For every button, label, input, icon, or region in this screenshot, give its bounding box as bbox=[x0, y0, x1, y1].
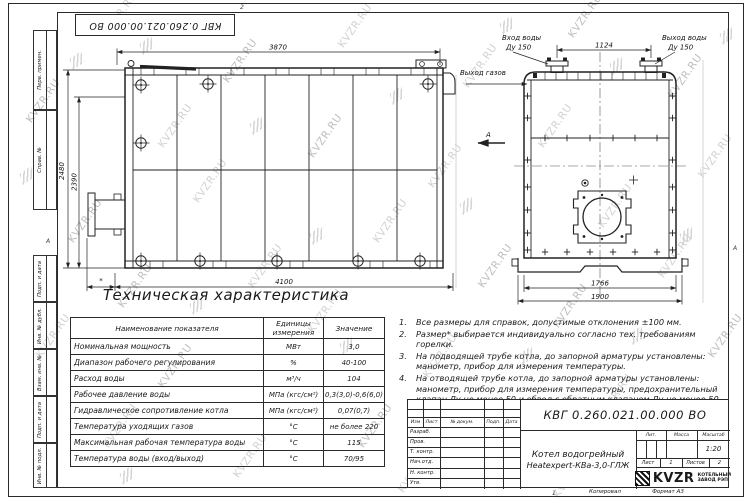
side-bottom-bolt-ticks bbox=[150, 261, 430, 268]
spec-header-cell: Значение bbox=[324, 318, 385, 339]
frame-margin-divider bbox=[46, 350, 47, 395]
spec-name-cell: Диапазон рабочего регулирования bbox=[71, 355, 264, 371]
spec-value-cell: 3,0 bbox=[324, 339, 385, 355]
company-name: КОТЕЛЬНЫЙ ЗАВОД РЭП bbox=[697, 473, 731, 484]
frame-margin-divider bbox=[46, 397, 47, 442]
spec-row: Рабочее давление водыМПа (кгс/см²)0,3(3,… bbox=[71, 387, 385, 403]
title-block-doc-number: КВГ 0.260.021.00.000 ВО bbox=[520, 400, 730, 430]
spec-units-cell: МПа (кгс/см²) bbox=[264, 387, 324, 403]
spec-units-cell: °С bbox=[264, 435, 324, 451]
spec-row: Номинальная мощностьМВт3,0 bbox=[71, 339, 385, 355]
spec-name-cell: Температура воды (вход/выход) bbox=[71, 451, 264, 467]
spec-units-cell: °С bbox=[264, 419, 324, 435]
outlet-flange bbox=[640, 58, 662, 73]
spec-units-cell: °С bbox=[264, 451, 324, 467]
inlet-label-1: Вход воды bbox=[502, 34, 542, 42]
gas-outlet-flange bbox=[416, 60, 455, 94]
title-block-row-label: Нач.отд. bbox=[410, 459, 433, 465]
spec-header-cell: Единицы измерения bbox=[264, 318, 324, 339]
drawing-sheet: { "watermark": "KVZR.RU", "doc_number": … bbox=[0, 0, 750, 500]
note-number: 1. bbox=[399, 317, 416, 328]
top-stamp-number: КВГ 0.260.021.00.000 ВО bbox=[89, 20, 221, 31]
title-block-line bbox=[408, 447, 520, 448]
spec-name-cell: Гидравлическое сопротивление котла bbox=[71, 403, 264, 419]
frame-margin-label: Справ. № bbox=[37, 147, 43, 173]
side-pipe bbox=[88, 193, 125, 236]
title-block-row-label: Н. контр. bbox=[410, 470, 435, 476]
spec-units-cell: МПа (кгс/см²) bbox=[264, 403, 324, 419]
note-text: На подводящей трубе котла, до запорной а… bbox=[416, 351, 731, 372]
spec-name-cell: Расход воды bbox=[71, 371, 264, 387]
zone-mark-right: А bbox=[733, 245, 737, 252]
zone-mark-top: 2 bbox=[240, 4, 244, 11]
product-name: Котел водогрейный Heatexpert-КВа-3,0-ГЛЖ bbox=[520, 430, 636, 489]
spec-name-cell: Температура уходящих газов bbox=[71, 419, 264, 435]
company-name-line2: ЗАВОД РЭП bbox=[697, 478, 728, 483]
note-item: 2.Размер* выбирается индивидуально согла… bbox=[399, 329, 731, 350]
tb-col-list: Лист bbox=[423, 417, 440, 427]
frame-margin-label: Подп. и дата bbox=[37, 260, 43, 296]
spec-row: Гидравлическое сопротивление котлаМПа (к… bbox=[71, 403, 385, 419]
note-item: 1.Все размеры для справок, допустимые от… bbox=[399, 317, 731, 328]
product-name-line2: Heatexpert-КВа-3,0-ГЛЖ bbox=[527, 460, 630, 470]
side-view: 3870 2480 2390 4100 * Выход газов А bbox=[45, 35, 530, 310]
spec-table: Наименование показателяЕдиницы измерения… bbox=[70, 317, 385, 467]
front-view: Вход воды Ду 150 Выход воды Ду 150 1124 … bbox=[490, 25, 715, 310]
outlet-label-1: Выход воды bbox=[662, 34, 707, 42]
tb-lit-label: Лит. bbox=[636, 430, 666, 440]
note-number: 3. bbox=[399, 351, 416, 372]
side-panel-lines bbox=[133, 75, 437, 261]
frame-margin-box: Инв. № подл. bbox=[33, 443, 57, 488]
frame-margin-label: Перв. примен. bbox=[37, 50, 43, 90]
note-item: 3.На подводящей трубе котла, до запорной… bbox=[399, 351, 731, 372]
title-block-row-label: Т. контр. bbox=[410, 449, 434, 455]
tb-mass-label: Масса bbox=[666, 430, 697, 440]
spec-value-cell: 40-100 bbox=[324, 355, 385, 371]
tb-sheet-label: Лист bbox=[636, 458, 660, 467]
spec-value-cell: 104 bbox=[324, 371, 385, 387]
dim-3870: 3870 bbox=[269, 44, 287, 52]
spec-header-cell: Наименование показателя bbox=[71, 318, 264, 339]
front-top-ticks bbox=[545, 72, 657, 80]
spec-value-cell: 115 bbox=[324, 435, 385, 451]
spec-value-cell: 70/95 bbox=[324, 451, 385, 467]
tb-scale-label: Масштаб bbox=[697, 430, 730, 440]
tb-sheets-value: 2 bbox=[709, 458, 730, 467]
spec-name-cell: Рабочее давление воды bbox=[71, 387, 264, 403]
spec-row: Температура воды (вход/выход)°С70/95 bbox=[71, 451, 385, 467]
spec-units-cell: % bbox=[264, 355, 324, 371]
note-text: Все размеры для справок, допустимые откл… bbox=[416, 317, 731, 328]
format-label: Формат А3 bbox=[628, 489, 708, 495]
dim-1900: 1900 bbox=[591, 293, 609, 301]
burner-opening bbox=[583, 198, 621, 236]
title-block-line bbox=[408, 409, 520, 410]
note-number: 2. bbox=[399, 329, 416, 350]
company-name-line1: КОТЕЛЬНЫЙ bbox=[697, 473, 731, 478]
note-text: Размер* выбирается индивидуально согласн… bbox=[416, 329, 731, 350]
mounting-lugs bbox=[133, 76, 437, 270]
title-block-row-label: Пров. bbox=[410, 439, 425, 445]
tb-col-podp: Подп. bbox=[484, 417, 503, 427]
frame-margin-box: Подп. и дата bbox=[33, 396, 57, 443]
sight-glass bbox=[582, 180, 588, 186]
spec-table-title: Техническая характеристика bbox=[70, 286, 382, 304]
company-logo-row: KVZR КОТЕЛЬНЫЙ ЗАВОД РЭП bbox=[636, 467, 730, 489]
kvzr-logo-text: KVZR bbox=[653, 471, 695, 486]
frame-margin-label: Инв. № подл. bbox=[37, 447, 43, 484]
frame-margin-box: Взам. инв. № bbox=[33, 349, 57, 396]
tb-col-data: Дата bbox=[503, 417, 520, 427]
outlet-label-2: Ду 150 bbox=[667, 44, 694, 52]
tb-col-docnum: № докум. bbox=[440, 417, 484, 427]
side-body-outline bbox=[125, 68, 443, 268]
inlet-label-2: Ду 150 bbox=[505, 44, 532, 52]
tb-col-izm: Изм bbox=[408, 417, 423, 427]
title-block-line bbox=[408, 468, 520, 469]
kvzr-logo-icon bbox=[635, 471, 650, 486]
inlet-flange bbox=[546, 58, 568, 73]
tb-scale-value: 1:20 bbox=[697, 440, 730, 458]
spec-name-cell: Максимальная рабочая температура воды bbox=[71, 435, 264, 451]
frame-margin-label: Инв. № дубл. bbox=[37, 307, 43, 343]
tb-sheet-value: 1 bbox=[660, 458, 682, 467]
spec-value-cell: 0,07(0,7) bbox=[324, 403, 385, 419]
inlet-leader bbox=[513, 52, 548, 64]
frame-margin-label: Взам. инв. № bbox=[37, 355, 43, 391]
dim-1766: 1766 bbox=[591, 280, 609, 288]
frame-margin-divider bbox=[46, 444, 47, 487]
zone-mark-bottom: 1 bbox=[552, 490, 556, 497]
spec-name-cell: Номинальная мощность bbox=[71, 339, 264, 355]
reference-cross bbox=[629, 176, 638, 185]
spec-value-cell: 0,3(3,0)-0,6(6,0) bbox=[324, 387, 385, 403]
spec-row: Температура уходящих газов°Сне более 220 bbox=[71, 419, 385, 435]
spec-units-cell: м³/ч bbox=[264, 371, 324, 387]
spec-row: Расход водым³/ч104 bbox=[71, 371, 385, 387]
title-block-line bbox=[408, 417, 520, 418]
spec-row: Диапазон рабочего регулирования%40-100 bbox=[71, 355, 385, 371]
dim-2390: 2390 bbox=[71, 173, 79, 191]
top-fitting bbox=[128, 61, 134, 67]
frame-margin-label: Подп. и дата bbox=[37, 401, 43, 437]
title-block-row-label: Разраб. bbox=[410, 429, 430, 435]
burner-plate bbox=[574, 191, 632, 243]
title-block-line bbox=[408, 478, 520, 479]
centerlines bbox=[514, 52, 686, 296]
top-reference-stamp: КВГ 0.260.021.00.000 ВО bbox=[75, 14, 235, 36]
dim-4100: 4100 bbox=[275, 278, 293, 286]
spec-units-cell: МВт bbox=[264, 339, 324, 355]
title-block: Изм Лист № докум. Подп. Дата Разраб.Пров… bbox=[407, 399, 729, 488]
tb-sheets-label: Листов bbox=[682, 458, 709, 467]
title-block-line bbox=[408, 457, 520, 458]
spec-header-row: Наименование показателяЕдиницы измерения… bbox=[71, 318, 385, 339]
dim-1124: 1124 bbox=[595, 42, 613, 50]
title-block-line bbox=[408, 427, 520, 428]
title-block-row-label: Утв. bbox=[410, 480, 421, 486]
spec-row: Максимальная рабочая температура воды°С1… bbox=[71, 435, 385, 451]
dim-burner-asterisk: * bbox=[99, 277, 103, 285]
title-block-line bbox=[408, 437, 520, 438]
spec-value-cell: не более 220 bbox=[324, 419, 385, 435]
dim-2480: 2480 bbox=[58, 162, 66, 180]
product-name-line1: Котел водогрейный bbox=[532, 450, 624, 460]
side-boiler-body bbox=[88, 60, 455, 270]
